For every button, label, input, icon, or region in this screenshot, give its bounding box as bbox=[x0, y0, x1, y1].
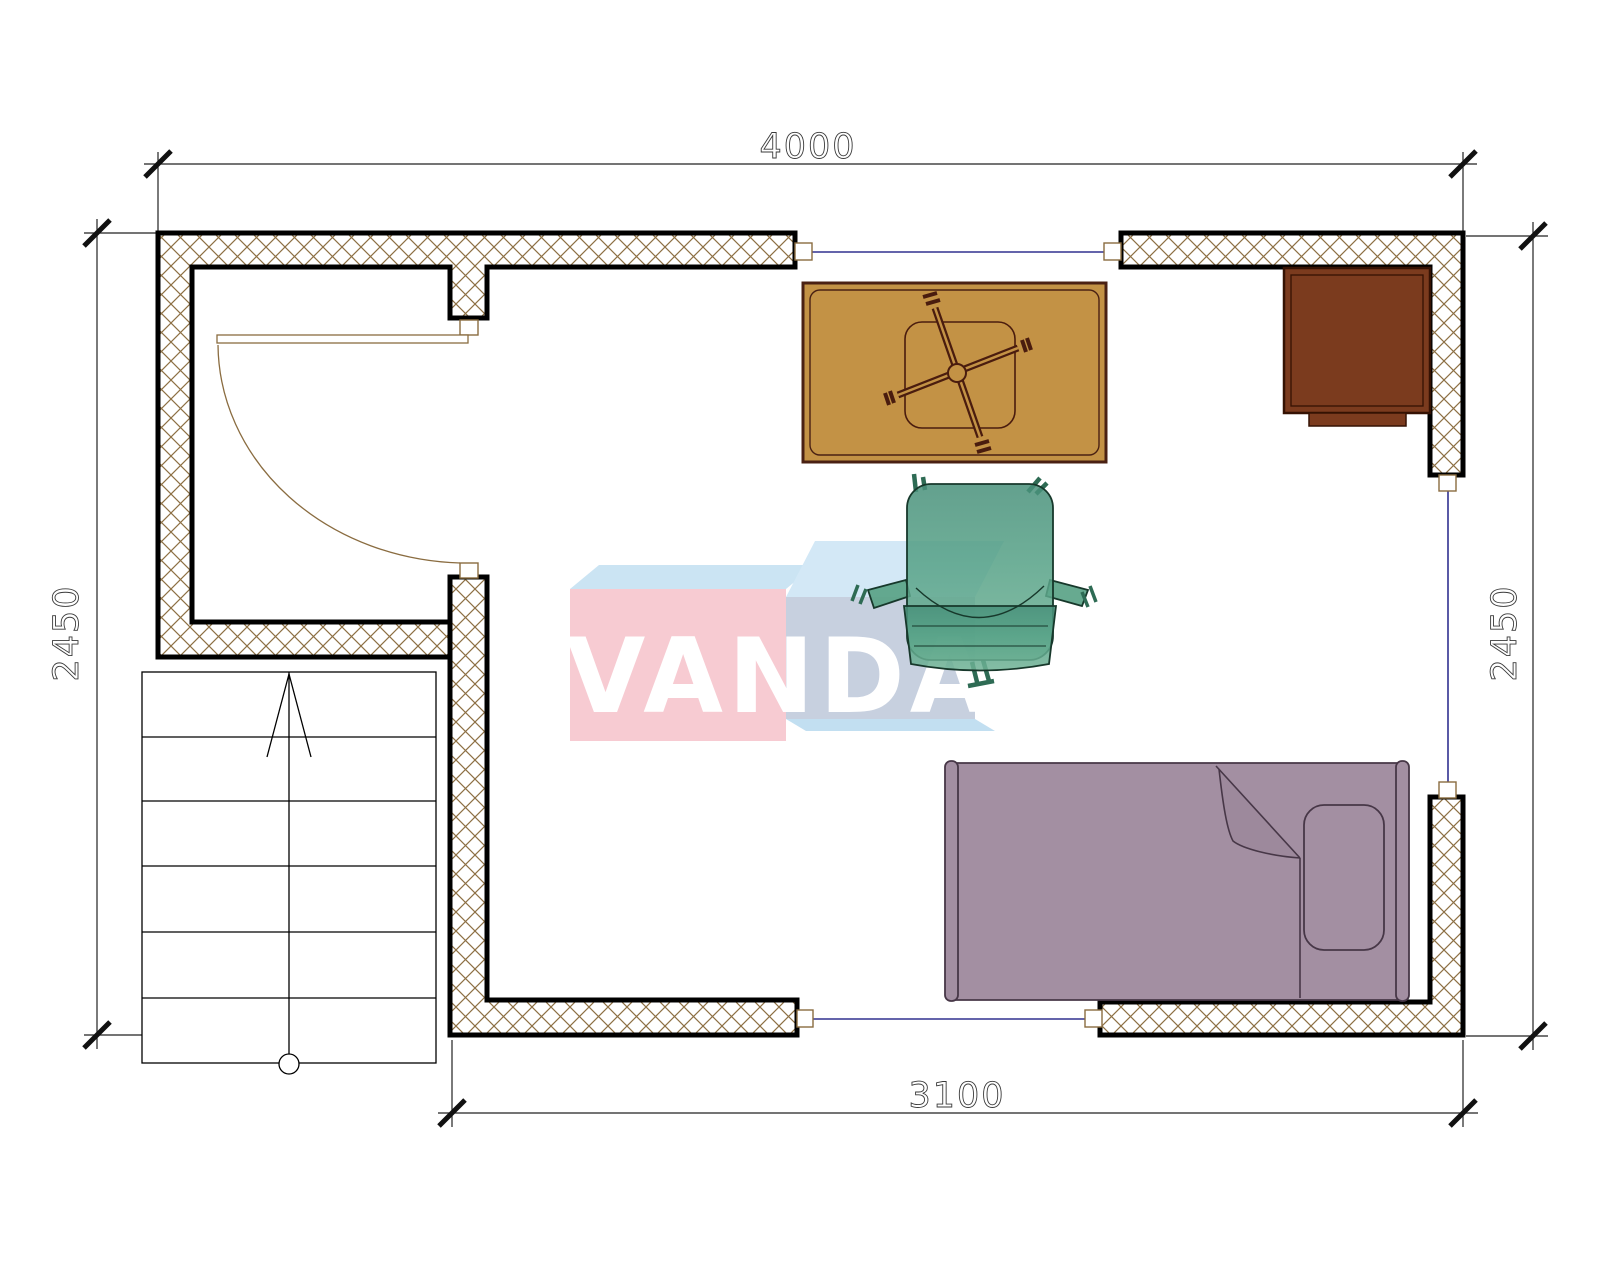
stairs-start-marker bbox=[279, 1054, 299, 1074]
bed-foot-bar bbox=[945, 761, 958, 1001]
dim-bottom-label: 3100 bbox=[908, 1076, 1005, 1116]
dim-right-label: 2450 bbox=[1485, 584, 1525, 681]
stairs bbox=[142, 672, 436, 1074]
bed bbox=[945, 761, 1409, 1001]
window-frame bbox=[795, 243, 812, 260]
logo-box-left-top bbox=[570, 565, 815, 589]
door-frame bbox=[460, 320, 478, 335]
window-frame bbox=[797, 1010, 813, 1027]
floor-plan-canvas: 4000 2450 2450 3100 VANDA bbox=[0, 0, 1600, 1280]
dim-left-label: 2450 bbox=[47, 584, 87, 681]
window-frame bbox=[1439, 782, 1456, 798]
window-frame bbox=[1439, 475, 1456, 491]
floor-plan-drawing: 4000 2450 2450 3100 VANDA bbox=[0, 0, 1600, 1280]
dim-top-label: 4000 bbox=[759, 127, 856, 167]
armchair-back bbox=[904, 606, 1056, 671]
pillow bbox=[1304, 805, 1384, 950]
window-frame bbox=[1085, 1010, 1102, 1027]
desk bbox=[803, 283, 1106, 462]
bed-head-bar bbox=[1396, 761, 1409, 1001]
door-leaf bbox=[217, 335, 468, 343]
door-frame bbox=[460, 563, 478, 578]
cabinet-front-tab bbox=[1309, 413, 1406, 426]
window-frame bbox=[1104, 243, 1121, 260]
cabinet bbox=[1284, 268, 1430, 426]
